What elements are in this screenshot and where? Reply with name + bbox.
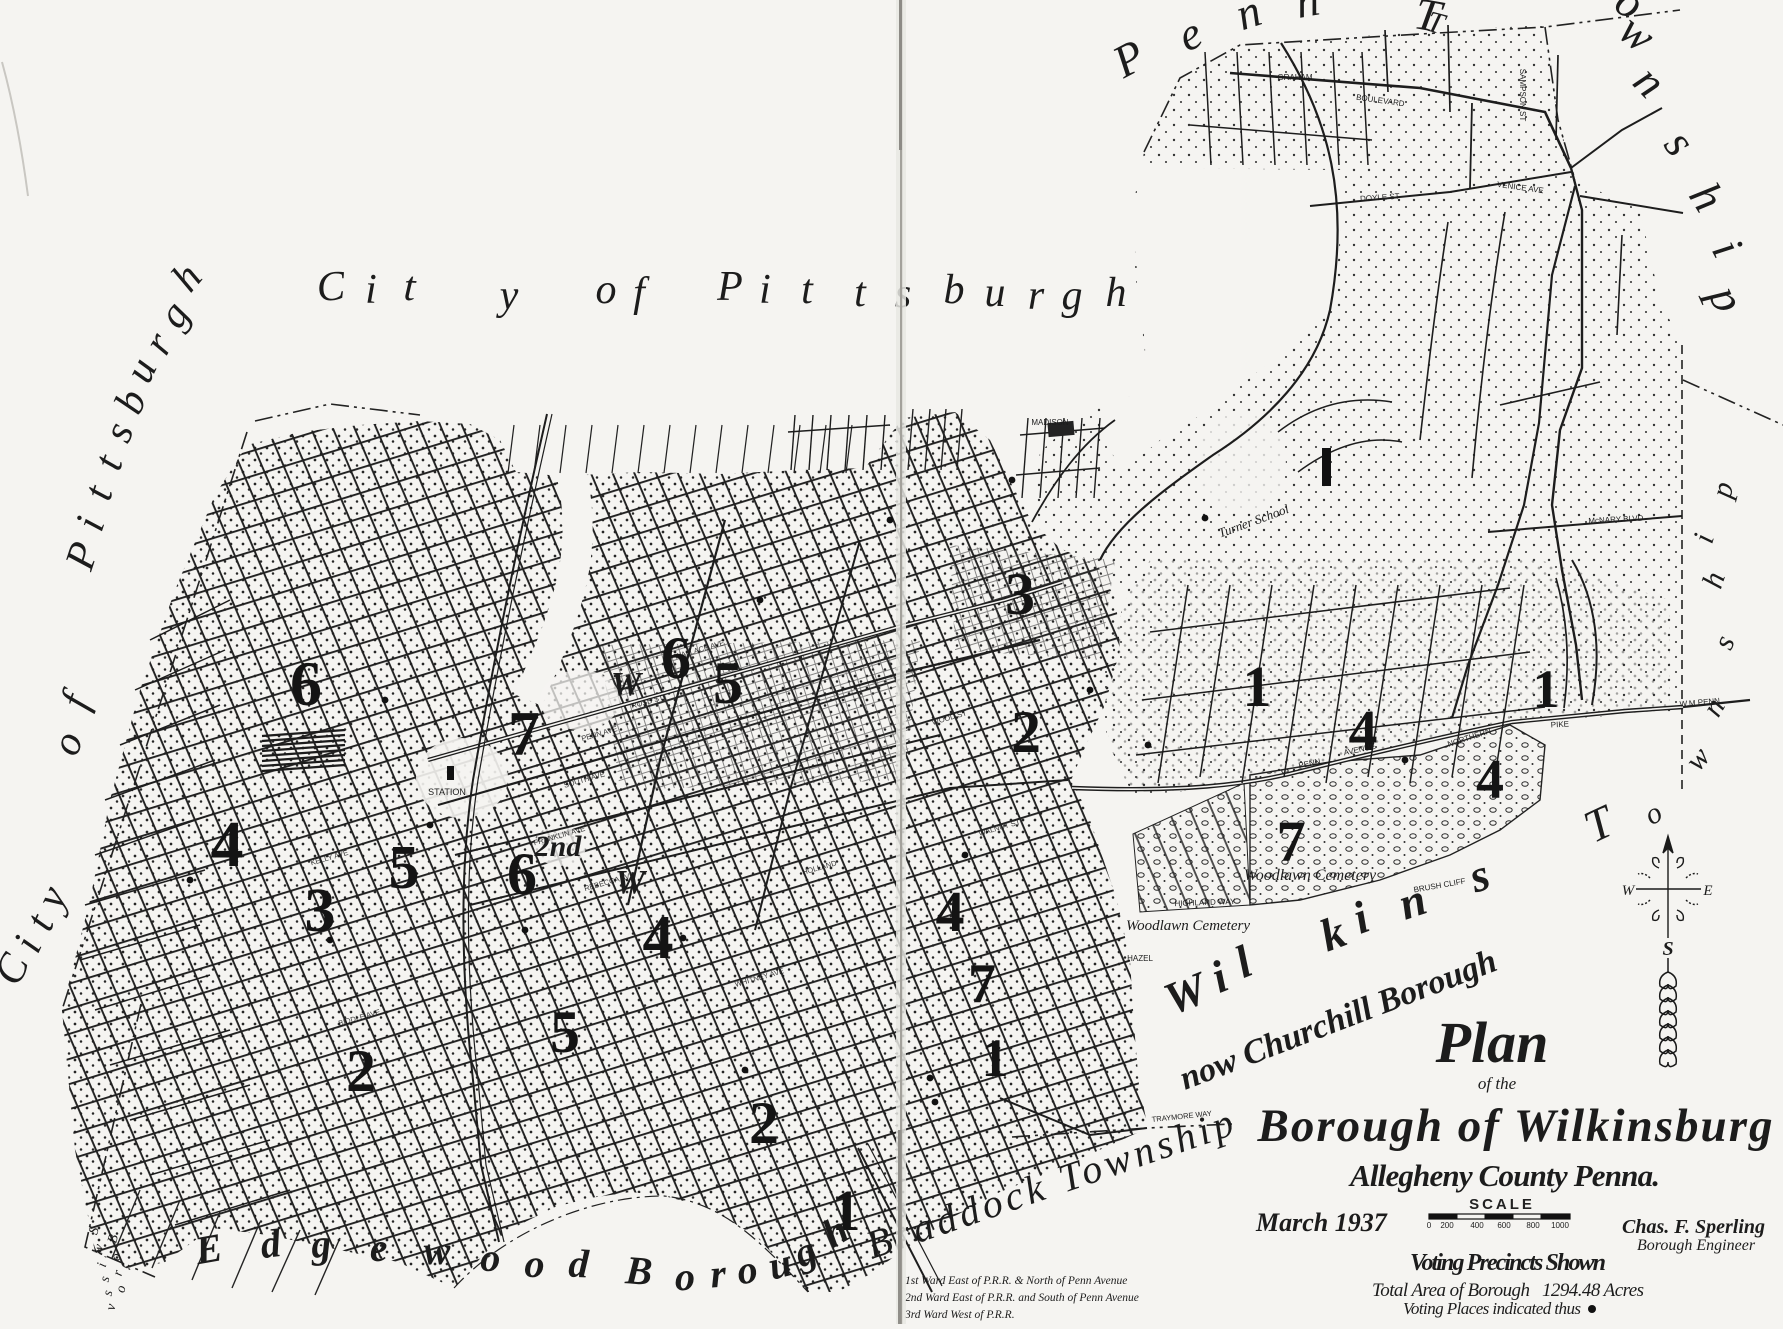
svg-text:800: 800 xyxy=(1526,1221,1540,1230)
svg-text:1000: 1000 xyxy=(1551,1221,1569,1230)
svg-text:6: 6 xyxy=(661,625,691,691)
svg-text:i: i xyxy=(759,267,771,313)
svg-text:o: o xyxy=(524,1241,546,1287)
svg-text:HAZEL: HAZEL xyxy=(1127,954,1153,963)
svg-text:Plan: Plan xyxy=(1435,1010,1549,1075)
svg-text:2nd Ward East of P.R.R. and So: 2nd Ward East of P.R.R. and South of Pen… xyxy=(905,1292,1139,1304)
svg-text:PIKE: PIKE xyxy=(1551,720,1570,730)
svg-text:g: g xyxy=(309,1220,333,1266)
svg-text:4: 4 xyxy=(1476,749,1504,811)
svg-text:u: u xyxy=(985,270,1006,316)
svg-text:w: w xyxy=(424,1228,451,1273)
svg-text:o: o xyxy=(596,267,617,313)
svg-text:MADISON: MADISON xyxy=(1031,418,1069,427)
svg-text:STATION: STATION xyxy=(428,787,466,797)
svg-text:2: 2 xyxy=(1011,699,1041,765)
svg-text:6: 6 xyxy=(290,648,322,719)
svg-text:3: 3 xyxy=(1005,561,1035,627)
svg-text:d: d xyxy=(568,1241,591,1287)
svg-text:200: 200 xyxy=(1440,1221,1454,1230)
svg-text:7: 7 xyxy=(968,953,996,1015)
svg-text:6: 6 xyxy=(507,841,537,907)
svg-text:7: 7 xyxy=(508,698,540,769)
svg-text:3: 3 xyxy=(305,877,336,945)
svg-text:Voting Precincts Shown: Voting Precincts Shown xyxy=(1410,1250,1606,1276)
svg-text:h: h xyxy=(1106,270,1127,316)
svg-text:t: t xyxy=(801,267,814,313)
svg-text:0: 0 xyxy=(1427,1221,1432,1230)
svg-text:Chas. F. Sperling: Chas. F. Sperling xyxy=(1622,1216,1765,1238)
svg-text:1: 1 xyxy=(982,1028,1009,1088)
svg-text:P: P xyxy=(716,264,743,310)
svg-text:5: 5 xyxy=(389,834,420,902)
svg-text:March 1937: March 1937 xyxy=(1255,1208,1388,1237)
svg-text:Voting Places indicated thus: Voting Places indicated thus xyxy=(1403,1299,1581,1318)
svg-text:o: o xyxy=(480,1235,502,1281)
svg-text:4: 4 xyxy=(211,808,244,881)
svg-text:2: 2 xyxy=(749,1090,779,1156)
svg-text:Total Area of Borough 1294.4: Total Area of Borough 1294.48 Acres xyxy=(1372,1280,1644,1301)
svg-text:r: r xyxy=(1028,273,1045,319)
svg-text:SAMPSON ST: SAMPSON ST xyxy=(1518,69,1527,122)
svg-text:y: y xyxy=(496,273,519,319)
svg-text:Woodlawn Cemetery: Woodlawn Cemetery xyxy=(1244,867,1377,884)
svg-text:SCALE: SCALE xyxy=(1469,1196,1535,1213)
svg-text:W: W xyxy=(611,666,644,703)
svg-text:GRAHAM: GRAHAM xyxy=(1277,73,1312,82)
svg-text:400: 400 xyxy=(1470,1221,1484,1230)
svg-text:b: b xyxy=(944,267,965,313)
svg-text:4: 4 xyxy=(643,904,674,972)
svg-text:2: 2 xyxy=(346,1038,376,1104)
svg-text:1: 1 xyxy=(1533,659,1560,719)
svg-text:Allegheny County Penna.: Allegheny County Penna. xyxy=(1348,1158,1660,1193)
svg-text:3rd Ward West of P.R.R.: 3rd Ward West of P.R.R. xyxy=(904,1309,1015,1321)
svg-text:i: i xyxy=(365,267,377,313)
svg-text:Borough Engineer: Borough Engineer xyxy=(1637,1237,1756,1254)
svg-text:C: C xyxy=(315,263,348,311)
svg-text:e: e xyxy=(369,1225,388,1271)
svg-text:g: g xyxy=(1062,273,1083,319)
svg-text:600: 600 xyxy=(1497,1221,1511,1230)
svg-text:Woodlawn Cemetery: Woodlawn Cemetery xyxy=(1126,918,1250,934)
svg-text:t: t xyxy=(854,270,867,316)
svg-text:W: W xyxy=(615,864,648,901)
svg-text:1: 1 xyxy=(1243,654,1272,719)
svg-text:W: W xyxy=(1622,883,1636,899)
svg-text:E: E xyxy=(1702,883,1712,899)
svg-text:5: 5 xyxy=(713,650,743,716)
svg-text:4: 4 xyxy=(936,879,965,944)
svg-text:of the: of the xyxy=(1478,1074,1517,1093)
svg-text:B: B xyxy=(623,1247,654,1294)
svg-text:7: 7 xyxy=(1277,809,1306,874)
svg-text:Borough of Wilkinsburg: Borough of Wilkinsburg xyxy=(1257,1100,1773,1152)
svg-text:o: o xyxy=(675,1254,695,1299)
svg-text:2nd: 2nd xyxy=(534,830,583,863)
svg-text:1st Ward East of P.R.R. & Nort: 1st Ward East of P.R.R. & North of Penn … xyxy=(905,1275,1127,1287)
svg-text:S: S xyxy=(1662,938,1673,960)
svg-text:5: 5 xyxy=(550,999,580,1065)
